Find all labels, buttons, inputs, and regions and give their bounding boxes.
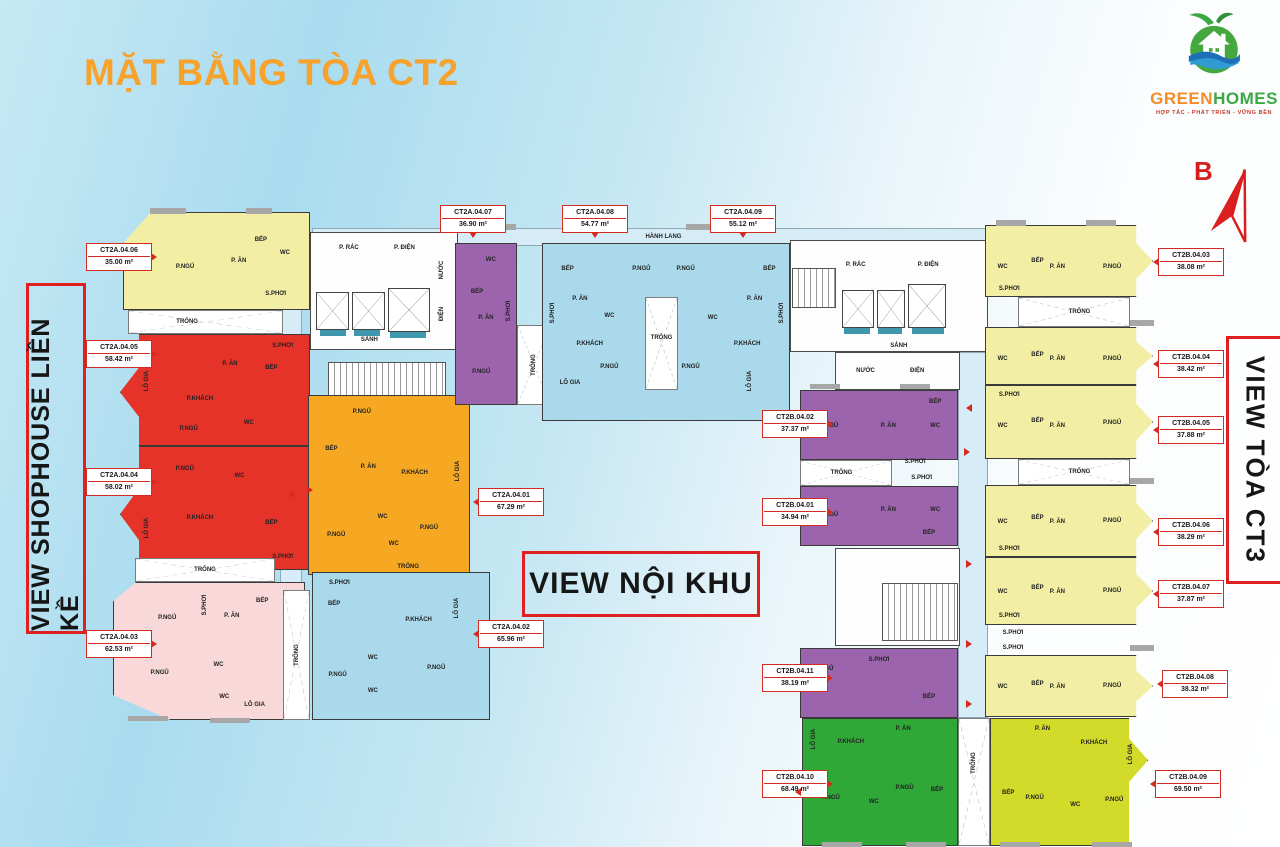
unit-block-orange: P.NGỦBẾPP. ĂNP.KHÁCHLÔ GIAP.NGỦWCWCP.NGỦ…: [308, 395, 470, 575]
lift-door-bar: [844, 328, 870, 334]
room-label: P.KHÁCH: [576, 341, 603, 347]
room-label: BẾP: [255, 237, 267, 243]
room-label: P.NGỦ: [176, 264, 194, 270]
callout-arrow: [151, 253, 157, 261]
callout-arrow: [827, 420, 833, 428]
balcony-bar: [810, 384, 840, 389]
room-label: P.KHÁCH: [187, 396, 214, 402]
lift-door-bar: [354, 330, 380, 336]
balcony-bar: [1092, 842, 1132, 847]
room-label: TRỐNG: [831, 470, 853, 476]
unit-code: CT2B.04.09: [1157, 773, 1219, 784]
callout-arrow: [151, 640, 157, 648]
room-label: BẾP: [256, 598, 268, 604]
lift-block: [352, 292, 385, 330]
room-label: HÀNH LANG: [645, 234, 681, 240]
unit-area: 37.88 m²: [1160, 431, 1222, 440]
room-label: WC: [486, 257, 496, 263]
direction-arrow: [307, 486, 313, 494]
room-label: WC: [234, 473, 244, 479]
lift-block: [877, 290, 905, 328]
room-label: BẾP: [923, 694, 935, 700]
void-block: TRỐNG: [645, 297, 678, 390]
room-label: P.NGỦ: [420, 525, 438, 531]
callout-arrow: [1153, 590, 1159, 598]
unit-callout: CT2A.04.0955.12 m²: [710, 205, 776, 233]
room-label: BẾP: [763, 266, 775, 272]
room-label: P. ĂN: [747, 296, 762, 302]
room-label: NƯỚC: [439, 261, 445, 280]
callout-arrow: [827, 674, 833, 682]
greenhomes-logo-icon: [1178, 10, 1250, 82]
room-label: P. RÁC: [339, 245, 359, 251]
unit-callout: CT2B.04.0438.42 m²: [1158, 350, 1224, 378]
room-label: LÔ GIA: [244, 702, 265, 708]
balcony-bar: [906, 842, 946, 847]
room-label: TRỐNG: [651, 335, 673, 341]
unit-callout: CT2B.04.0638.29 m²: [1158, 518, 1224, 546]
room-label: LÔ GIA: [454, 598, 460, 619]
lift-block: [842, 290, 874, 328]
unit-area: 37.37 m²: [764, 425, 826, 434]
callout-arrow: [1153, 258, 1159, 266]
room-label: P. ĂN: [1035, 726, 1050, 732]
unit-callout: CT2A.04.0854.77 m²: [562, 205, 628, 233]
room-label: BẾP: [1031, 258, 1043, 264]
direction-arrow: [964, 448, 970, 456]
room-label: P. ĂN: [1050, 356, 1065, 362]
lift-block: [908, 284, 946, 328]
room-label: TRỐNG: [397, 564, 419, 570]
room-label: WC: [389, 541, 399, 547]
corridor-block: [958, 352, 988, 718]
unit-block-blue: S.PHƠIBẾPP.KHÁCHLÔ GIAP.NGỦWCP.NGỦWC: [312, 572, 490, 720]
room-label: P.NGỦ: [1103, 518, 1121, 524]
room-label: S.PHƠI: [329, 580, 350, 586]
brand-logo: GREENHOMES HỢP TÁC - PHÁT TRIỂN - VỮNG B…: [1148, 10, 1280, 116]
room-label: LÔ GIA: [144, 371, 150, 392]
room-label: P. ĂN: [224, 613, 239, 619]
room-label: LÔ GIA: [455, 460, 461, 481]
unit-callout: CT2B.04.0537.88 m²: [1158, 416, 1224, 444]
callout-arrow: [739, 232, 747, 238]
stair-block: [792, 268, 836, 308]
unit-callout: CT2B.04.1138.19 m²: [762, 664, 828, 692]
unit-code: CT2B.04.06: [1160, 521, 1222, 532]
view-label-toa-ct3: VIEW TÒA CT3: [1226, 336, 1280, 584]
room-label: P. ĂN: [1050, 264, 1065, 270]
unit-area: 38.29 m²: [1160, 533, 1222, 542]
room-label: S.PHƠI: [905, 459, 926, 465]
room-label: LÔ GIA: [811, 729, 817, 750]
unit-area: 58.02 m²: [88, 483, 150, 492]
room-label: P. ĂN: [881, 507, 896, 513]
unit-area: 38.42 m²: [1160, 365, 1222, 374]
callout-arrow: [151, 350, 157, 358]
unit-area: 35.00 m²: [88, 258, 150, 267]
room-label: WC: [280, 250, 290, 256]
north-compass: B: [1192, 156, 1262, 248]
unit-code: CT2A.04.03: [88, 633, 150, 644]
room-label: BẾP: [325, 446, 337, 452]
unit-callout: CT2B.04.0237.37 m²: [762, 410, 828, 438]
room-label: BẾP: [265, 365, 277, 371]
room-label: NƯỚC: [856, 368, 875, 374]
room-label: SẢNH: [361, 337, 378, 343]
labelonly-block: S.PHƠIS.PHƠI: [985, 625, 1055, 655]
callout-arrow: [1153, 426, 1159, 434]
room-label: P. ĐIỆN: [394, 245, 415, 251]
room-label: WC: [998, 519, 1008, 525]
room-label: P. ĐIỆN: [918, 262, 939, 268]
unit-callout: CT2B.04.0838.32 m²: [1162, 670, 1228, 698]
room-label: TRỐNG: [176, 319, 198, 325]
room-label: P.KHÁCH: [405, 617, 432, 623]
callout-arrow: [827, 780, 833, 788]
room-label: TRỐNG: [294, 644, 300, 666]
unit-area: 58.42 m²: [88, 355, 150, 364]
unit-callout: CT2A.04.0458.02 m²: [86, 468, 152, 496]
room-label: SẢNH: [890, 343, 907, 349]
brand-name-green: GREEN: [1150, 89, 1213, 108]
room-label: P. ĂN: [222, 361, 237, 367]
room-label: P.NGỦ: [1103, 420, 1121, 426]
unit-callout: CT2A.04.0635.00 m²: [86, 243, 152, 271]
unit-callout: CT2A.04.0265.96 m²: [478, 620, 544, 648]
unit-block-yellow: WCBẾPP. ĂNP.NGỦ: [985, 655, 1153, 717]
room-label: P.NGỦ: [677, 266, 695, 272]
room-label: P.NGỦ: [1026, 795, 1044, 801]
room-label: WC: [244, 420, 254, 426]
unit-block-yellow: WCBẾPP. ĂNP.NGỦS.PHƠI: [985, 557, 1153, 625]
room-label: WC: [930, 507, 940, 513]
void-block: TRỐNG: [1018, 459, 1130, 485]
room-label: P.NGỦ: [327, 532, 345, 538]
room-label: WC: [930, 423, 940, 429]
balcony-bar: [246, 208, 272, 214]
room-label: P.NGỦ: [353, 409, 371, 415]
callout-arrow: [473, 630, 479, 638]
balcony-bar: [1086, 220, 1116, 226]
lift-door-bar: [878, 328, 902, 334]
unit-callout: CT2B.04.0969.50 m²: [1155, 770, 1221, 798]
void-block: TRỐNG: [800, 460, 892, 486]
room-label: ĐIỆN: [910, 368, 924, 374]
unit-callout: CT2A.04.0558.42 m²: [86, 340, 152, 368]
room-label: P.NGỦ: [180, 426, 198, 432]
room-label: S.PHƠI: [202, 594, 208, 615]
room-label: P.KHÁCH: [187, 515, 214, 521]
page-title: MẶT BẰNG TÒA CT2: [84, 52, 459, 94]
unit-code: CT2A.04.07: [442, 208, 504, 219]
callout-arrow: [827, 508, 833, 516]
room-label: BẾP: [1031, 515, 1043, 521]
lift-door-bar: [320, 330, 346, 336]
unit-code: CT2B.04.10: [764, 773, 826, 784]
unit-callout: CT2A.04.0362.53 m²: [86, 630, 152, 658]
balcony-bar: [900, 384, 930, 389]
room-label: P. ĂN: [1050, 684, 1065, 690]
balcony-bar: [996, 220, 1026, 226]
room-label: WC: [998, 589, 1008, 595]
room-label: S.PHƠI: [779, 302, 785, 323]
lift-block: [316, 292, 349, 330]
void-block: TRỐNG: [1018, 297, 1130, 327]
room-label: P. ĂN: [572, 296, 587, 302]
room-label: P.KHÁCH: [401, 470, 428, 476]
room-label: P.NGỦ: [1103, 588, 1121, 594]
room-label: BẾP: [561, 266, 573, 272]
room-label: P. ĂN: [1050, 519, 1065, 525]
room-label: S.PHƠI: [999, 613, 1020, 619]
room-label: P.KHÁCH: [734, 341, 761, 347]
unit-area: 55.12 m²: [712, 220, 774, 229]
room-label: BẾP: [265, 520, 277, 526]
callout-arrow: [1153, 360, 1159, 368]
room-label: BẾP: [471, 289, 483, 295]
callout-arrow: [1157, 680, 1163, 688]
unit-code: CT2A.04.05: [88, 343, 150, 354]
floorplan-page: MẶT BẰNG TÒA CT2 GREENHOMES HỢP TÁC - PH…: [0, 0, 1280, 847]
room-label: P.NGỦ: [896, 785, 914, 791]
room-label: S.PHƠI: [1003, 645, 1024, 651]
unit-code: CT2B.04.01: [764, 501, 826, 512]
room-label: S.PHƠI: [506, 301, 512, 322]
room-label: S.PHƠI: [265, 291, 286, 297]
room-label: BẾP: [328, 601, 340, 607]
unit-code: CT2B.04.11: [764, 667, 826, 678]
unit-area: 38.19 m²: [764, 679, 826, 688]
room-label: TRỐNG: [531, 354, 537, 376]
void-block: TRỐNG: [128, 310, 283, 334]
callout-arrow: [1153, 528, 1159, 536]
room-label: P.NGỦ: [681, 364, 699, 370]
unit-block-yellow: WCBẾPP. ĂNP.NGỦS.PHƠI: [985, 485, 1153, 557]
unit-code: CT2B.04.08: [1164, 673, 1226, 684]
room-label: WC: [998, 264, 1008, 270]
room-label: BẾP: [1031, 418, 1043, 424]
room-label: BẾP: [1002, 790, 1014, 796]
room-label: P.NGỦ: [150, 670, 168, 676]
unit-callout: CT2B.04.0737.87 m²: [1158, 580, 1224, 608]
room-label: P.NGỦ: [158, 615, 176, 621]
void-block: TRỐNG: [283, 590, 310, 720]
room-label: P. ĂN: [1050, 589, 1065, 595]
room-label: WC: [998, 423, 1008, 429]
balcony-bar: [1000, 842, 1040, 847]
unit-block-yellow: WCBẾPP. ĂNP.NGỦ: [985, 327, 1153, 385]
unit-area: 65.96 m²: [480, 635, 542, 644]
room-label: BẾP: [1031, 681, 1043, 687]
unit-area: 54.77 m²: [564, 220, 626, 229]
room-label: P.NGỦ: [472, 369, 490, 375]
room-label: WC: [368, 655, 378, 661]
void-block: TRỐNG: [958, 718, 990, 846]
unit-code: CT2B.04.02: [764, 413, 826, 424]
brand-tagline: HỢP TÁC - PHÁT TRIỂN - VỮNG BỀN: [1148, 110, 1280, 116]
unit-block-yellow: S.PHƠIWCBẾPP. ĂNP.NGỦ: [985, 385, 1153, 459]
direction-arrow: [966, 700, 972, 708]
unit-code: CT2A.04.01: [480, 491, 542, 502]
callout-arrow: [473, 498, 479, 506]
room-label: BẾP: [923, 530, 935, 536]
room-label: S.PHƠI: [999, 546, 1020, 552]
room-label: P.NGỦ: [1105, 797, 1123, 803]
unit-area: 62.53 m²: [88, 645, 150, 654]
room-label: S.PHƠI: [869, 657, 890, 663]
balcony-bar: [128, 716, 168, 721]
unit-block-yellow: WCBẾPP. ĂNP.NGỦS.PHƠI: [985, 225, 1153, 297]
room-label: P.NGỦ: [427, 665, 445, 671]
unit-area: 69.50 m²: [1157, 785, 1219, 794]
unit-callout: CT2A.04.0736.90 m²: [440, 205, 506, 233]
room-label: LÔ GIA: [1128, 744, 1134, 765]
balcony-bar: [822, 842, 862, 847]
unit-block-lime: P. ĂNP.KHÁCHLÔ GIABẾPP.NGỦWCP.NGỦ: [990, 718, 1148, 846]
direction-arrow: [966, 404, 972, 412]
unit-area: 34.94 m²: [764, 513, 826, 522]
room-label: P.NGỦ: [1103, 683, 1121, 689]
room-label: BẾP: [931, 787, 943, 793]
north-label: B: [1194, 156, 1213, 187]
stair-block: [882, 583, 958, 641]
room-label: S.PHƠI: [911, 475, 932, 481]
lift-block: [388, 288, 430, 332]
view-label-shophouse: VIEW SHOPHOUSE LIỀN KỀ: [26, 283, 86, 634]
room-label: P.KHÁCH: [837, 739, 864, 745]
room-label: P. ĂN: [895, 726, 910, 732]
room-label: LÔ GIA: [747, 371, 753, 392]
unit-code: CT2B.04.03: [1160, 251, 1222, 262]
balcony-bar: [150, 208, 186, 214]
room-label: P. ĂN: [231, 258, 246, 264]
room-label: P. ĂN: [1050, 423, 1065, 429]
room-label: WC: [1070, 802, 1080, 808]
room-label: S.PHƠI: [272, 343, 293, 349]
room-label: WC: [708, 315, 718, 321]
unit-block-purple: WCBẾPP. ĂNS.PHƠIP.NGỦ: [455, 243, 517, 405]
void-block: TRỐNG: [135, 558, 275, 582]
room-label: LÔ GIA: [144, 517, 150, 538]
room-label: WC: [998, 684, 1008, 690]
room-label: P. ĂN: [881, 423, 896, 429]
room-label: P.NGỦ: [1103, 264, 1121, 270]
room-label: BẾP: [929, 399, 941, 405]
balcony-bar: [1130, 478, 1154, 484]
callout-arrow: [151, 478, 157, 486]
unit-code: CT2A.04.08: [564, 208, 626, 219]
lift-door-bar: [390, 332, 426, 338]
plain-block: NƯỚCĐIỆN: [835, 352, 960, 390]
room-label: ĐIỆN: [439, 307, 445, 321]
unit-callout: CT2B.04.0134.94 m²: [762, 498, 828, 526]
balcony-bar: [1130, 320, 1154, 326]
unit-area: 38.32 m²: [1164, 685, 1226, 694]
unit-code: CT2A.04.09: [712, 208, 774, 219]
room-label: TRỐNG: [1069, 469, 1091, 475]
direction-arrow: [966, 560, 972, 568]
room-label: WC: [378, 514, 388, 520]
direction-arrow: [966, 640, 972, 648]
unit-callout: CT2A.04.0167.29 m²: [478, 488, 544, 516]
room-label: P.NGỦ: [600, 364, 618, 370]
unit-callout: CT2B.04.0338.08 m²: [1158, 248, 1224, 276]
room-label: P. RÁC: [846, 262, 866, 268]
room-label: S.PHƠI: [272, 554, 293, 560]
room-label: P. ĂN: [478, 315, 493, 321]
room-label: S.PHƠI: [550, 302, 556, 323]
room-label: P.NGỦ: [1103, 356, 1121, 362]
balcony-bar: [210, 718, 250, 723]
brand-name-homes: HOMES: [1213, 89, 1278, 108]
unit-code: CT2B.04.04: [1160, 353, 1222, 364]
brand-name: GREENHOMES: [1148, 89, 1280, 109]
unit-code: CT2A.04.06: [88, 246, 150, 257]
room-label: WC: [214, 662, 224, 668]
unit-area: 38.08 m²: [1160, 263, 1222, 272]
direction-arrow: [288, 490, 294, 498]
room-label: TRỐNG: [1069, 309, 1091, 315]
unit-block-red: P.NGỦWCP.KHÁCHLÔ GIABẾPS.PHƠI: [120, 446, 310, 570]
room-label: WC: [604, 313, 614, 319]
room-label: TRỐNG: [971, 752, 977, 774]
view-label-noi-khu: VIEW NỘI KHU: [522, 551, 760, 617]
room-label: WC: [368, 688, 378, 694]
lift-door-bar: [912, 328, 944, 334]
room-label: S.PHƠI: [999, 392, 1020, 398]
room-label: P.NGỦ: [176, 466, 194, 472]
callout-arrow: [591, 232, 599, 238]
room-label: P. ĂN: [361, 464, 376, 470]
unit-area: 37.87 m²: [1160, 595, 1222, 604]
room-label: P.KHÁCH: [1081, 740, 1108, 746]
room-label: P.NGỦ: [329, 672, 347, 678]
unit-code: CT2B.04.07: [1160, 583, 1222, 594]
room-label: S.PHƠI: [1003, 630, 1024, 636]
callout-arrow: [469, 232, 477, 238]
unit-code: CT2A.04.04: [88, 471, 150, 482]
direction-arrow: [795, 788, 801, 796]
unit-area: 36.90 m²: [442, 220, 504, 229]
room-label: P.NGỦ: [632, 266, 650, 272]
labelonly-block: S.PHƠIS.PHƠI: [892, 455, 958, 485]
room-label: LÔ GIA: [560, 380, 581, 386]
room-label: WC: [219, 694, 229, 700]
room-label: WC: [869, 799, 879, 805]
room-label: S.PHƠI: [999, 286, 1020, 292]
unit-code: CT2B.04.05: [1160, 419, 1222, 430]
room-label: TRỐNG: [194, 567, 216, 573]
unit-area: 67.29 m²: [480, 503, 542, 512]
room-label: BẾP: [1031, 585, 1043, 591]
callout-arrow: [1150, 780, 1156, 788]
room-label: WC: [998, 356, 1008, 362]
unit-code: CT2A.04.02: [480, 623, 542, 634]
room-label: BẾP: [1031, 352, 1043, 358]
balcony-bar: [1130, 645, 1154, 651]
